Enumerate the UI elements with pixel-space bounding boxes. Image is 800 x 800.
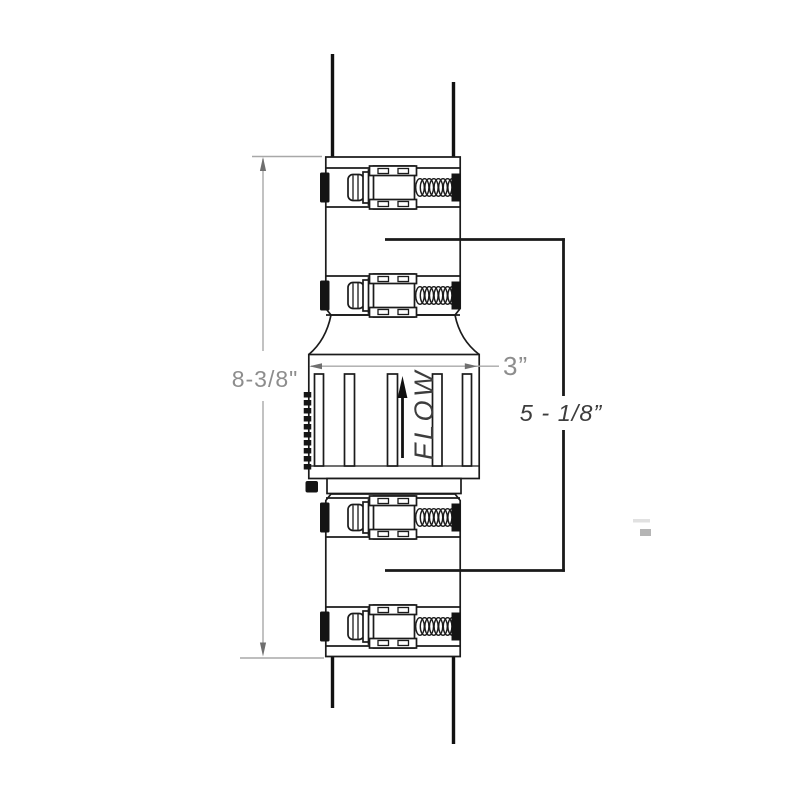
technical-drawing-canvas: 8-3/8" FLOW [0, 0, 800, 800]
coupling-bottom [320, 494, 461, 657]
pipe-bottom [333, 656, 454, 744]
coupling-top [320, 157, 461, 317]
arrowhead-up [260, 157, 266, 171]
stray-print-marks [633, 519, 651, 536]
collar-band-end-mark [306, 481, 319, 493]
flare-left [309, 315, 331, 355]
flare-right [455, 315, 479, 355]
pipe-top [333, 54, 454, 158]
body-width-label: 3” [503, 351, 528, 381]
overall-height-label: 8-3/8" [232, 366, 299, 392]
flow-label: FLOW [409, 368, 439, 460]
valve-installation-diagram: 8-3/8" FLOW [0, 0, 800, 800]
body-lower-collar [327, 479, 461, 494]
coupling-span-label: 5 - 1/8” [520, 400, 603, 426]
valve-body: FLOW 3” [306, 315, 529, 494]
arrowhead-down [260, 643, 266, 657]
